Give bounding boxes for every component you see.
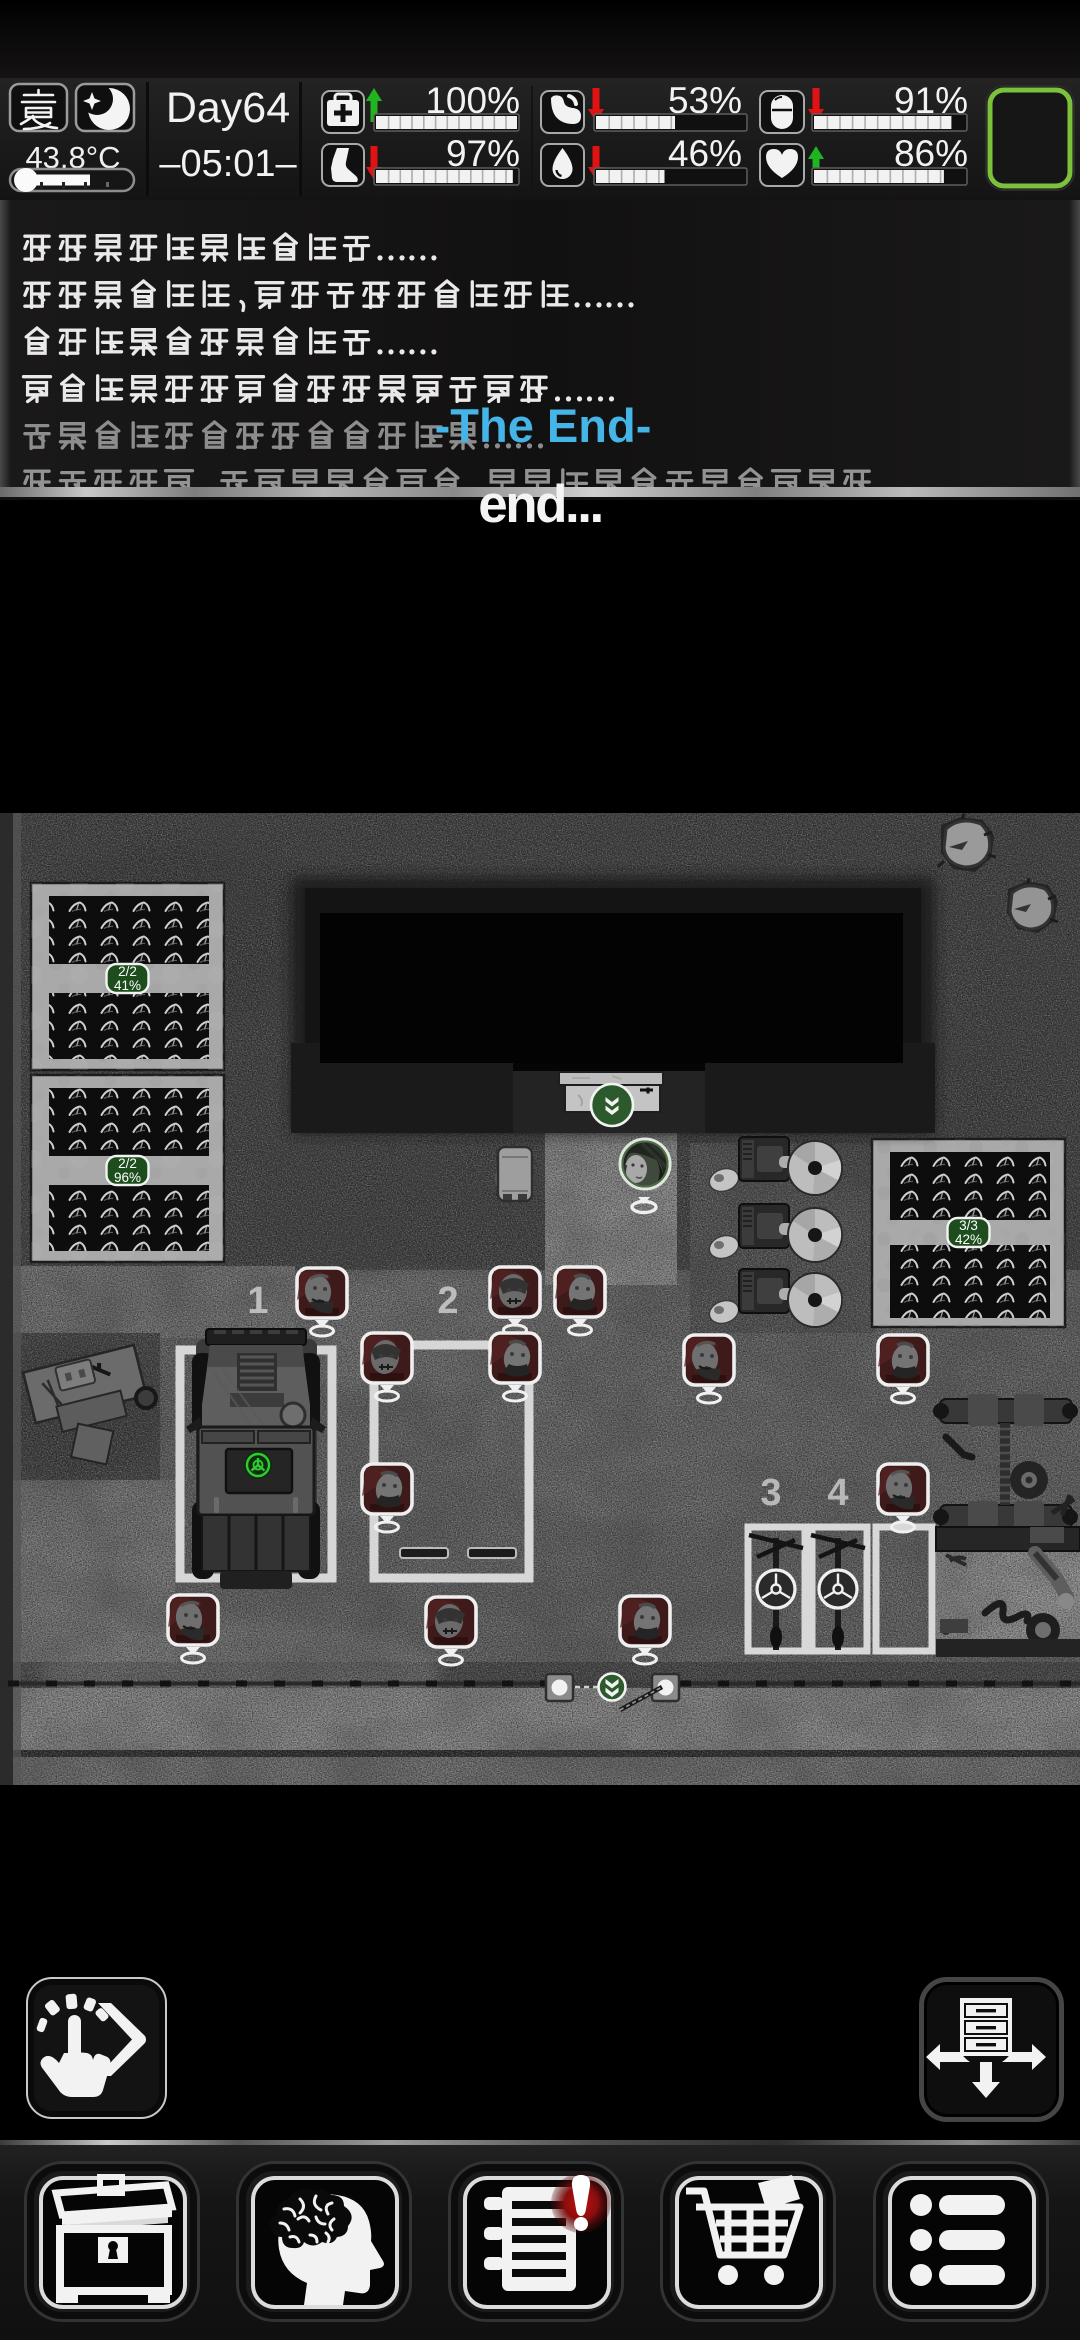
svg-text:2: 2 [437, 1280, 458, 1322]
svg-text:2/2: 2/2 [118, 1156, 137, 1171]
svg-text:41%: 41% [114, 978, 141, 993]
svg-text:Day64: Day64 [166, 84, 290, 132]
svg-text:3/3: 3/3 [959, 1218, 978, 1233]
svg-text:–05:01–: –05:01– [159, 143, 297, 185]
svg-text:96%: 96% [114, 1170, 141, 1185]
svg-text:42%: 42% [955, 1232, 982, 1247]
svg-text:2/2: 2/2 [118, 964, 137, 979]
svg-text:4: 4 [827, 1472, 848, 1514]
svg-text:1: 1 [247, 1280, 268, 1322]
svg-text:3: 3 [760, 1472, 781, 1514]
